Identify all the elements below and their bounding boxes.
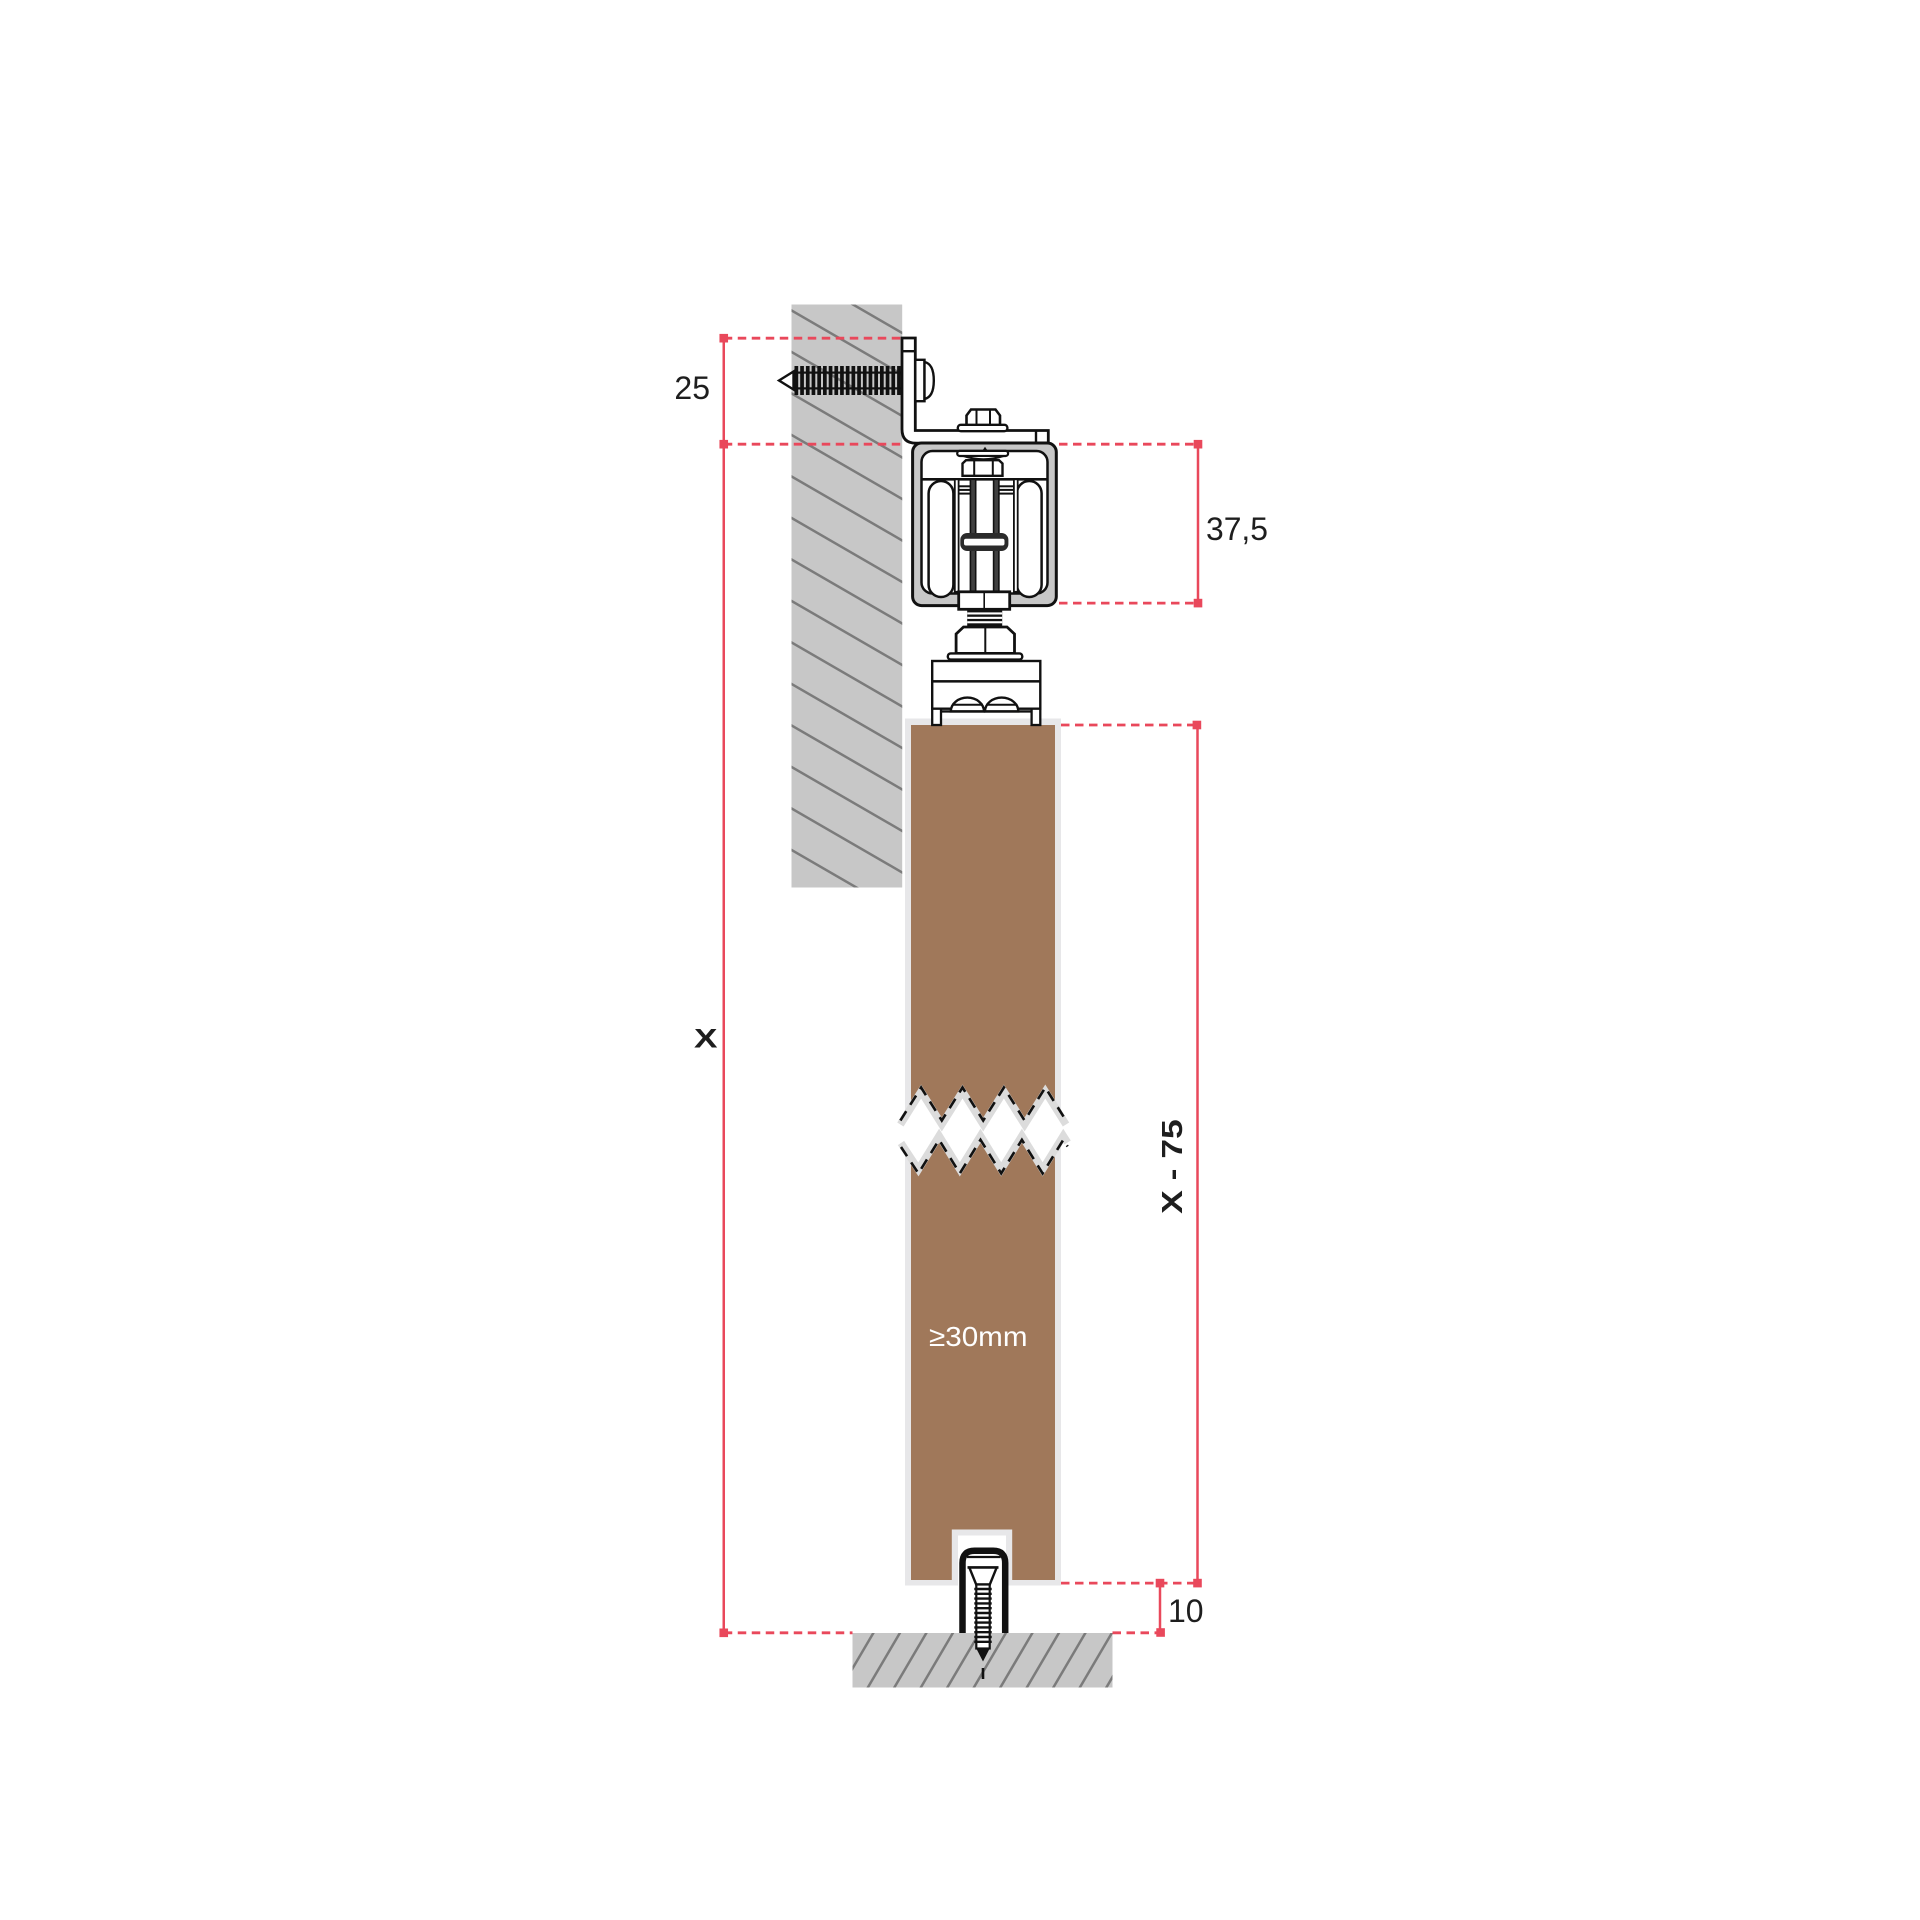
svg-text:X: X [694, 1024, 718, 1054]
svg-text:10: 10 [1168, 1593, 1204, 1629]
svg-text:X - 75: X - 75 [1157, 1119, 1189, 1214]
svg-text:25: 25 [674, 370, 710, 406]
svg-text:≥30mm: ≥30mm [929, 1321, 1028, 1352]
svg-text:37,5: 37,5 [1206, 511, 1268, 547]
